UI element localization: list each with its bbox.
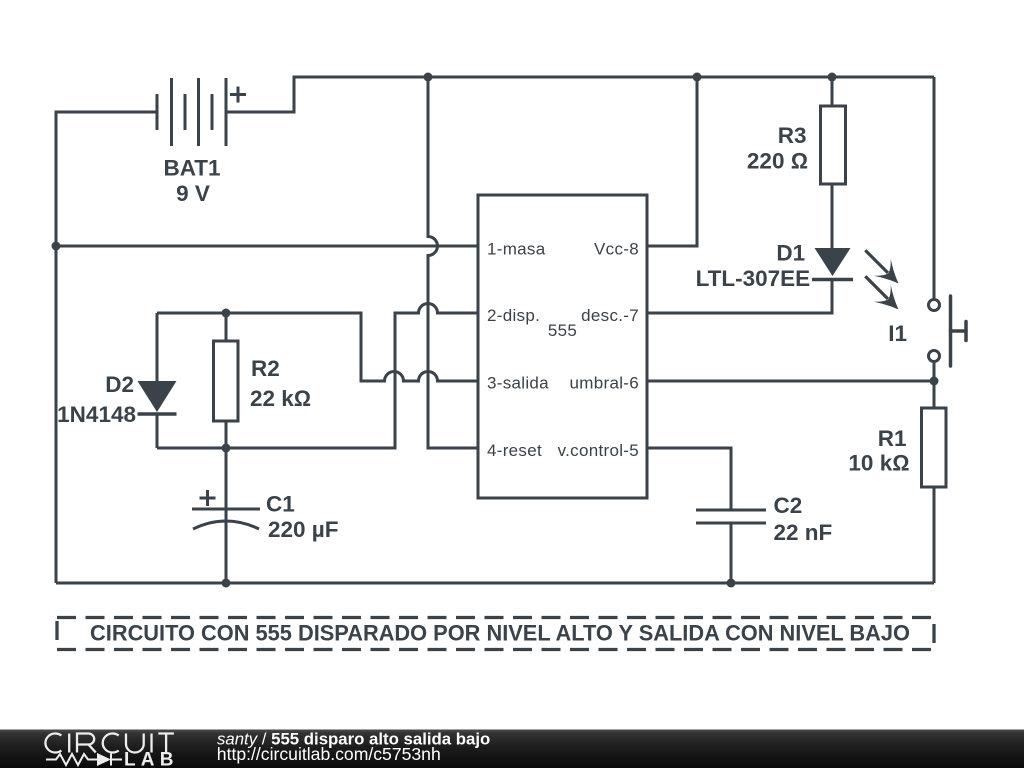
svg-text:1N4148: 1N4148: [57, 402, 136, 427]
svg-text:LTL-307EE: LTL-307EE: [696, 266, 811, 291]
svg-text:1-masa: 1-masa: [487, 240, 546, 259]
svg-text:9 V: 9 V: [176, 181, 210, 206]
svg-text:umbral-6: umbral-6: [570, 374, 639, 393]
svg-text:BAT1: BAT1: [163, 156, 220, 181]
svg-text:220 µF: 220 µF: [268, 517, 339, 542]
svg-text:C2: C2: [774, 493, 803, 518]
svg-text:10 kΩ: 10 kΩ: [848, 451, 909, 476]
svg-text:D2: D2: [105, 372, 134, 397]
svg-text:R2: R2: [251, 356, 280, 381]
svg-text:220 Ω: 220 Ω: [747, 149, 808, 174]
svg-text:555: 555: [548, 321, 577, 340]
svg-text:2-disp.: 2-disp.: [487, 306, 540, 325]
svg-text:D1: D1: [776, 241, 805, 266]
svg-text:Vcc-8: Vcc-8: [594, 240, 639, 259]
svg-text:CIRCUITO CON 555 DISPARADO POR: CIRCUITO CON 555 DISPARADO POR NIVEL ALT…: [90, 621, 910, 646]
svg-text:desc.-7: desc.-7: [581, 306, 639, 325]
svg-text:R3: R3: [778, 123, 807, 148]
svg-text:3-salida: 3-salida: [487, 374, 549, 393]
svg-text:v.control-5: v.control-5: [558, 441, 639, 460]
svg-text:http://circuitlab.com/c5753nh: http://circuitlab.com/c5753nh: [217, 744, 441, 764]
svg-text:I1: I1: [888, 321, 907, 346]
svg-text:22 kΩ: 22 kΩ: [250, 386, 311, 411]
svg-text:R1: R1: [878, 426, 907, 451]
svg-text:LAB: LAB: [124, 750, 179, 768]
svg-text:22 nF: 22 nF: [774, 520, 833, 545]
svg-text:4-reset: 4-reset: [487, 441, 542, 460]
svg-text:C1: C1: [266, 492, 295, 517]
